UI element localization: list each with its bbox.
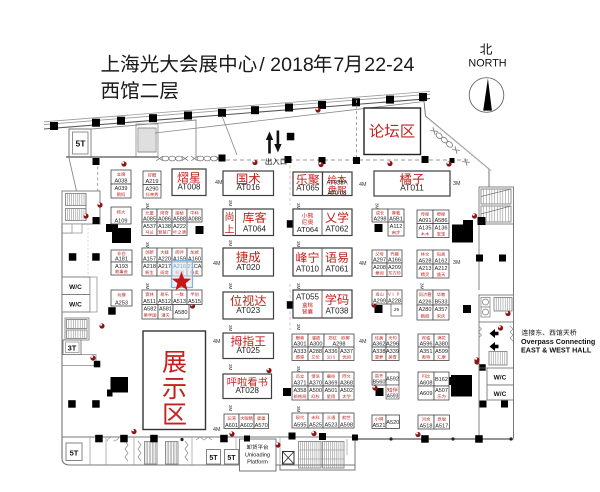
svg-text:A228: A228 <box>388 299 401 305</box>
svg-text:7: 7 <box>333 54 344 76</box>
svg-text:A290: A290 <box>145 187 158 193</box>
svg-text:AT038: AT038 <box>326 307 350 316</box>
svg-text:A288: A288 <box>309 349 322 355</box>
svg-text:3M: 3M <box>228 283 233 290</box>
svg-text:A299: A299 <box>373 299 386 305</box>
svg-text:3T: 3T <box>68 344 77 353</box>
svg-text:A502: A502 <box>340 388 353 394</box>
svg-text:A357: A357 <box>434 307 447 313</box>
svg-text:Platform: Platform <box>247 460 268 466</box>
svg-text:AT008: AT008 <box>178 183 202 192</box>
svg-text:3M: 3M <box>228 325 233 332</box>
svg-text:A582: A582 <box>143 307 156 313</box>
svg-text:3M: 3M <box>228 405 233 412</box>
svg-text:A520: A520 <box>386 420 399 426</box>
svg-text:3M: 3M <box>296 324 301 331</box>
svg-text:AT020: AT020 <box>236 262 260 272</box>
svg-text:W/C: W/C <box>494 391 507 398</box>
svg-text:AT010: AT010 <box>296 265 320 274</box>
svg-text:A193: A193 <box>115 264 128 270</box>
svg-text:A501: A501 <box>324 388 337 394</box>
svg-text:5T: 5T <box>227 455 236 462</box>
svg-text:AT062: AT062 <box>326 225 350 234</box>
svg-text:A212: A212 <box>434 266 447 272</box>
svg-text:A039: A039 <box>114 186 127 192</box>
svg-text:A208: A208 <box>373 265 386 271</box>
svg-text:A280: A280 <box>418 307 431 313</box>
svg-text:3M: 3M <box>145 242 150 249</box>
svg-text:A298: A298 <box>373 217 386 223</box>
svg-text:3M: 3M <box>453 260 461 266</box>
svg-text:A570: A570 <box>255 423 268 429</box>
svg-text:22-24: 22-24 <box>364 54 414 76</box>
svg-text:A518: A518 <box>419 424 432 430</box>
svg-text:A521: A521 <box>372 423 385 429</box>
svg-text:B162: B162 <box>435 377 448 383</box>
svg-text:W/C: W/C <box>69 284 82 291</box>
svg-text:AT025: AT025 <box>236 346 260 355</box>
svg-text:A209: A209 <box>388 265 401 271</box>
svg-text:A580: A580 <box>174 310 187 316</box>
svg-text:A112: A112 <box>390 224 403 230</box>
svg-text:A581: A581 <box>159 307 172 313</box>
svg-text:A599: A599 <box>435 349 448 355</box>
svg-text:AT064: AT064 <box>243 225 267 234</box>
svg-text:A333: A333 <box>293 349 306 355</box>
svg-text:A537: A537 <box>143 224 156 230</box>
svg-text:AT011: AT011 <box>400 183 424 193</box>
svg-text:4M: 4M <box>359 261 367 267</box>
svg-text:3M: 3M <box>228 240 233 247</box>
svg-text:4M: 4M <box>213 261 221 267</box>
svg-text:3M: 3M <box>453 181 461 187</box>
svg-text:AT055: AT055 <box>296 293 320 302</box>
svg-text:A135: A135 <box>418 226 431 232</box>
svg-text:4M: 4M <box>213 427 221 433</box>
svg-text:NORTH: NORTH <box>468 58 506 70</box>
svg-text:3M: 3M <box>296 406 301 413</box>
svg-text:3M: 3M <box>228 364 233 371</box>
svg-text:A253: A253 <box>115 301 128 307</box>
svg-text:AT023: AT023 <box>236 305 260 315</box>
svg-text:A525: A525 <box>309 423 322 429</box>
svg-text:A218: A218 <box>143 264 156 270</box>
svg-text:29: 29 <box>394 307 400 312</box>
svg-text:Unloading: Unloading <box>245 453 270 459</box>
svg-text:AT038A: AT038A <box>326 181 347 187</box>
svg-text:A592: A592 <box>386 377 399 383</box>
svg-text:A358: A358 <box>293 388 306 394</box>
svg-text:AT064: AT064 <box>297 225 319 234</box>
svg-text:A339: A339 <box>386 349 399 355</box>
svg-text:A507: A507 <box>435 388 448 394</box>
svg-text:3M: 3M <box>296 366 301 373</box>
svg-text:A523: A523 <box>324 423 337 429</box>
svg-text:A602: A602 <box>240 423 253 429</box>
svg-text:5T: 5T <box>209 455 218 462</box>
svg-text:AT0 08: AT0 08 <box>328 191 348 197</box>
svg-text:A109: A109 <box>114 219 127 225</box>
svg-text:A351: A351 <box>419 349 432 355</box>
svg-text:A338: A338 <box>372 349 385 355</box>
svg-text:3M: 3M <box>420 283 425 290</box>
svg-text:4M: 4M <box>359 339 367 345</box>
svg-text:A593: A593 <box>387 394 399 400</box>
svg-text:A136: A136 <box>434 226 447 232</box>
svg-text:5T: 5T <box>70 449 79 458</box>
svg-text:A601: A601 <box>225 423 238 429</box>
svg-text:A213: A213 <box>418 266 431 272</box>
svg-text:A337: A337 <box>340 349 353 355</box>
svg-text:A138: A138 <box>158 224 171 230</box>
svg-text:A088: A088 <box>188 217 201 223</box>
svg-text:3M: 3M <box>296 203 301 210</box>
svg-text:3M: 3M <box>296 241 301 248</box>
svg-text:A336: A336 <box>324 349 337 355</box>
svg-text:A598: A598 <box>340 423 353 429</box>
svg-text:4M: 4M <box>213 339 221 345</box>
svg-text:W/C: W/C <box>69 302 82 309</box>
svg-text:EAST & WEST HALL: EAST & WEST HALL <box>521 345 592 354</box>
svg-text:W/C: W/C <box>494 375 507 382</box>
svg-text:A515: A515 <box>188 299 201 305</box>
svg-text:3M: 3M <box>296 283 301 290</box>
svg-text:3M: 3M <box>145 283 150 290</box>
svg-text:AT016: AT016 <box>236 183 260 192</box>
svg-text:AT065: AT065 <box>296 183 320 192</box>
svg-text:A217: A217 <box>158 264 171 270</box>
svg-text:3M: 3M <box>375 203 380 210</box>
svg-text:B560: B560 <box>372 380 385 386</box>
svg-text:A609: A609 <box>419 391 432 397</box>
svg-text:A517: A517 <box>435 424 448 430</box>
svg-text:A595: A595 <box>293 423 306 429</box>
svg-text:AT028: AT028 <box>235 386 259 395</box>
svg-text:AT061: AT061 <box>326 265 350 274</box>
svg-text:3M: 3M <box>145 203 150 210</box>
svg-text:/ 2018: / 2018 <box>259 54 314 76</box>
svg-text:4M: 4M <box>359 182 367 188</box>
svg-text:5T: 5T <box>76 139 87 149</box>
svg-text:4M: 4M <box>215 180 223 186</box>
svg-text:A222: A222 <box>173 224 186 230</box>
svg-text:A500: A500 <box>309 388 322 394</box>
svg-text:3M: 3M <box>228 200 233 207</box>
